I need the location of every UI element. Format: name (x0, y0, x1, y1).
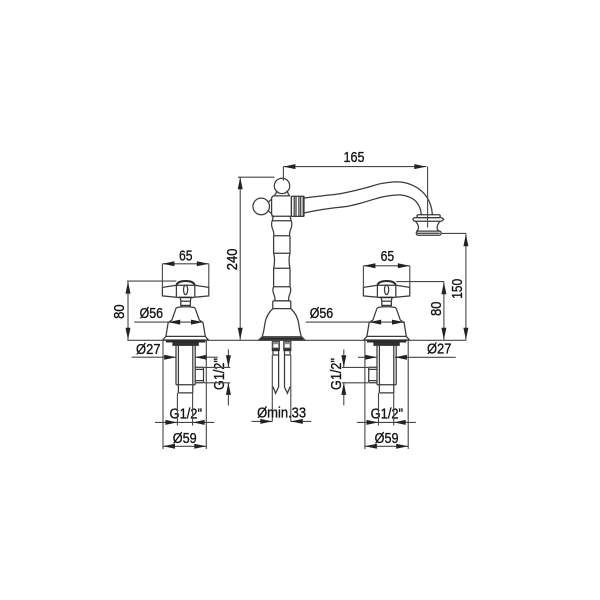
svg-text:240: 240 (224, 249, 241, 271)
svg-text:150: 150 (449, 279, 466, 299)
svg-text:Ømin.33: Ømin.33 (257, 404, 306, 421)
svg-text:Ø56: Ø56 (140, 305, 163, 322)
svg-text:G1/2": G1/2" (328, 358, 345, 390)
svg-text:G1/2": G1/2" (170, 406, 203, 423)
svg-text:Ø59: Ø59 (173, 430, 197, 447)
svg-text:80: 80 (111, 304, 128, 319)
svg-text:G1/2": G1/2" (371, 406, 404, 423)
svg-text:80: 80 (428, 301, 445, 316)
svg-text:Ø56: Ø56 (310, 305, 333, 322)
svg-text:165: 165 (344, 149, 365, 166)
svg-text:Ø27: Ø27 (136, 341, 161, 358)
svg-text:Ø27: Ø27 (427, 341, 452, 358)
svg-text:65: 65 (179, 247, 193, 264)
svg-text:Ø59: Ø59 (375, 430, 399, 447)
svg-text:G1/2": G1/2" (211, 358, 228, 390)
svg-text:65: 65 (381, 248, 395, 265)
